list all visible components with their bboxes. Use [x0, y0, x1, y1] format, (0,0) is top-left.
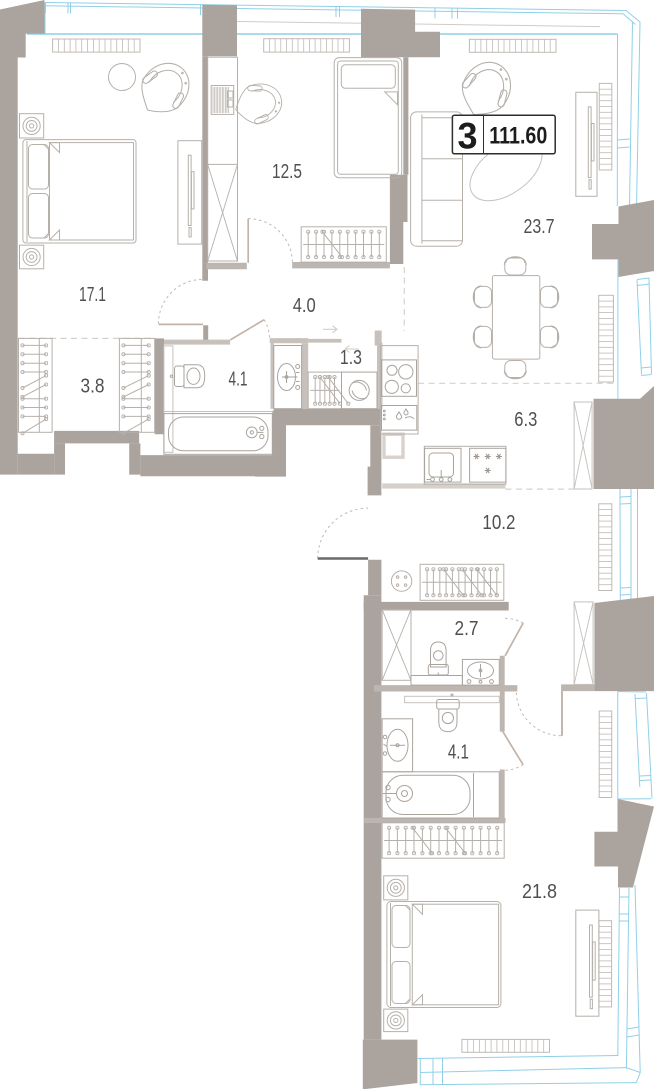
svg-text:17.1: 17.1 [79, 284, 106, 306]
svg-text:6.3: 6.3 [514, 409, 537, 431]
svg-text:21.8: 21.8 [522, 881, 557, 903]
svg-text:1.3: 1.3 [340, 347, 362, 369]
svg-text:10.2: 10.2 [482, 512, 515, 534]
svg-text:12.5: 12.5 [272, 161, 302, 183]
svg-text:3.8: 3.8 [81, 376, 105, 398]
svg-text:4.0: 4.0 [293, 295, 316, 317]
svg-text:2.7: 2.7 [455, 618, 479, 640]
svg-text:4.1: 4.1 [229, 369, 248, 391]
svg-text:23.7: 23.7 [524, 216, 555, 238]
svg-text:111.60: 111.60 [489, 123, 547, 150]
svg-text:3: 3 [458, 116, 478, 157]
svg-text:4.1: 4.1 [448, 742, 469, 764]
